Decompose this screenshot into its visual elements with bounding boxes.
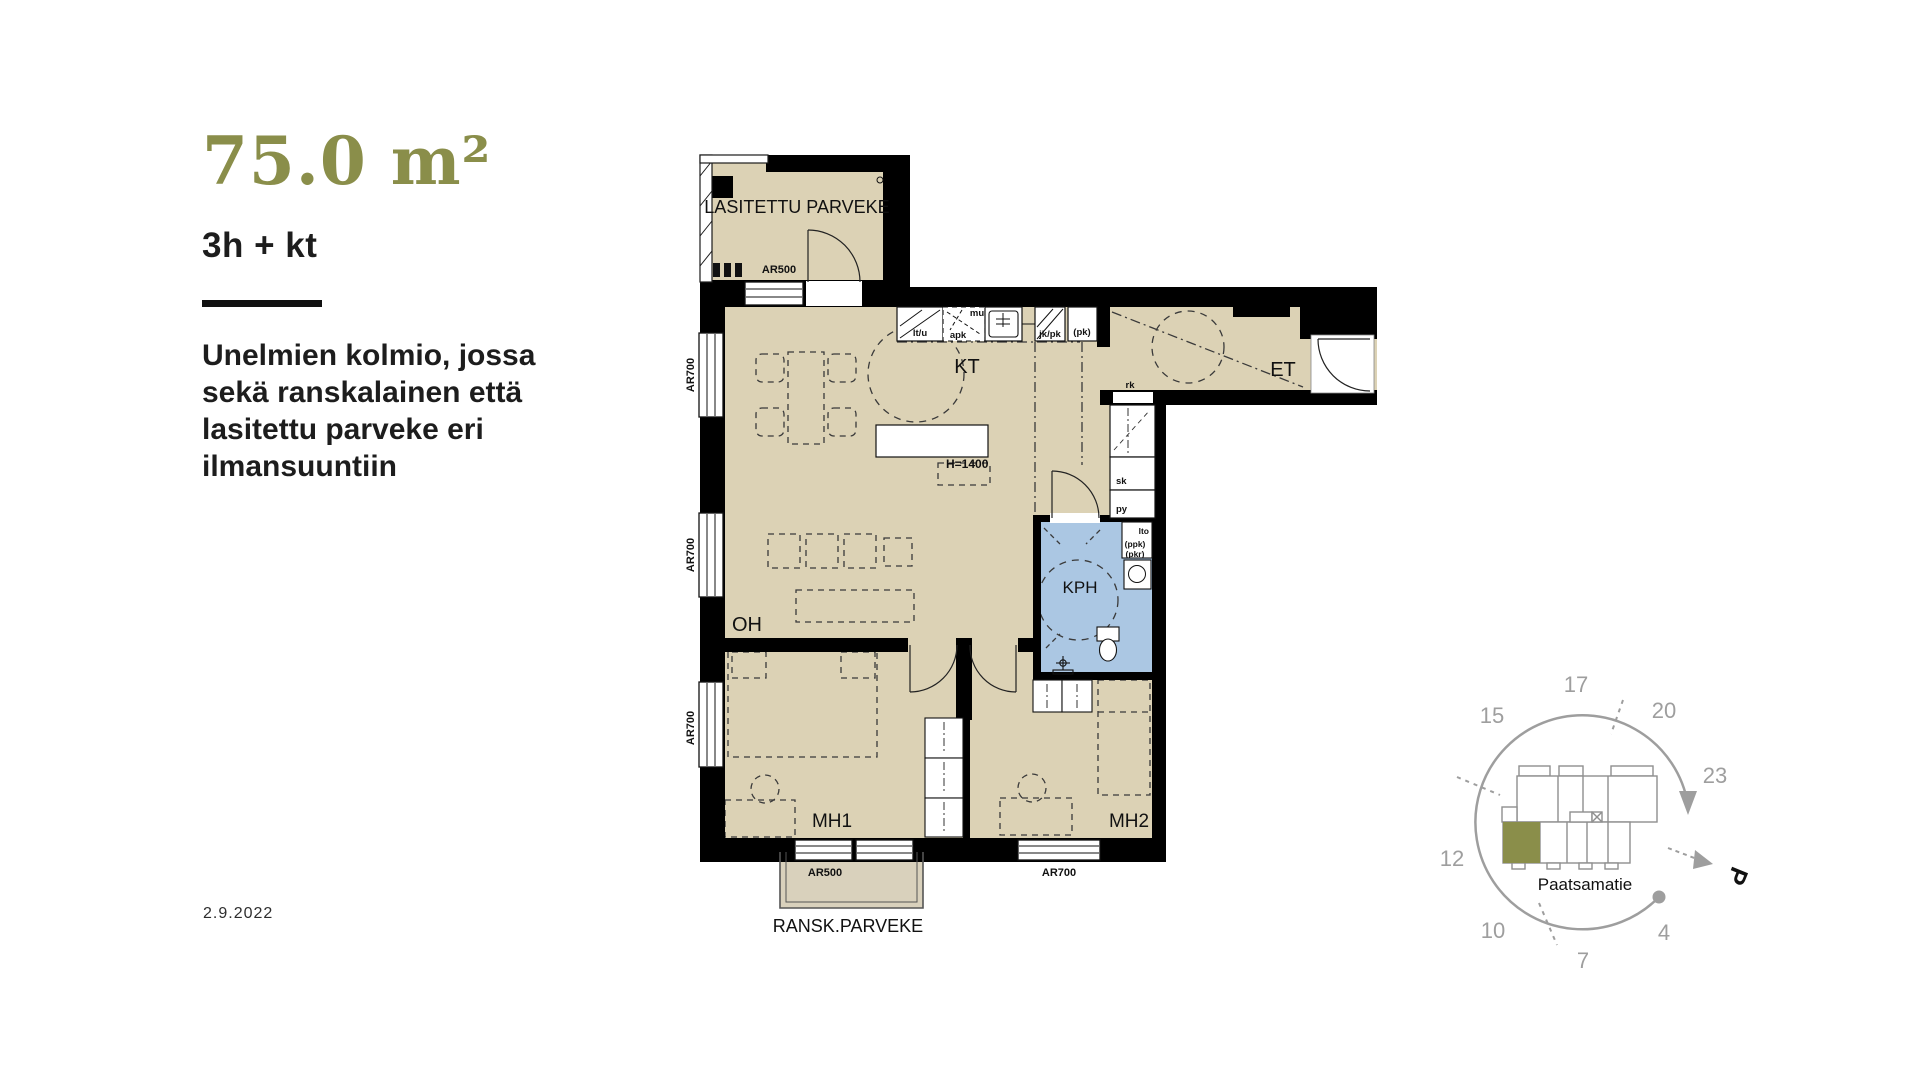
compass-number: 20 [1652,698,1676,723]
window-ar700-group [699,333,723,767]
fixture-label-pk: (pk) [1073,327,1090,338]
balcony-window [745,282,803,305]
highlighted-unit [1503,822,1540,863]
compass-number: 15 [1480,703,1504,728]
siteplan: Paatsamatie P 17 20 23 4 7 10 12 15 [1440,672,1753,973]
compass-number: 7 [1577,948,1589,973]
room-label-entry: ET [1270,359,1296,381]
room-label-french-balcony: RANSK.PARVEKE [773,916,923,936]
fixture-label-ppk: (ppk) [1125,539,1146,549]
fixture-label-pkr: (pkr) [1126,549,1145,559]
window-label-ar700-mh2: AR700 [1042,867,1076,879]
north-arrow-icon [1693,850,1713,869]
wall-corner-ne [1300,287,1377,339]
compass-number: 12 [1440,846,1464,871]
closet-rk [1110,405,1155,457]
balcony-vent [724,263,731,277]
compass-dot [1653,891,1666,904]
kph-door-opening [1050,513,1100,523]
wall-closet-divider [963,718,970,838]
window-label-ar700-left3: AR700 [685,711,697,745]
room-label-glazed-balcony: LASITETTU PARVEKE [704,197,889,217]
room-label-kitchen: KT [954,356,980,378]
room-label-mh1: MH1 [812,811,852,832]
wall-kph-left [1033,515,1041,680]
wall-balcony-top [766,155,885,172]
rk-wall-gap [1113,392,1153,403]
window-label-ar500: AR500 [762,264,796,276]
toilet-bowl [1100,639,1117,661]
fixture-label-mu: mu [970,308,984,319]
fixture-label-lto: lto [1139,526,1149,536]
counter-height-label: H=1400 [946,457,989,471]
window-label-ar500-french: AR500 [808,867,842,879]
north-marker-label: P [1721,863,1753,889]
island-counter [876,425,988,457]
balcony-vent [713,263,720,277]
balcony-vent [735,263,742,277]
compass-arrowhead-icon [1679,791,1697,815]
street-name-label: Paatsamatie [1538,875,1633,894]
closet-label-sk: sk [1116,476,1127,487]
fixture-label-jkpk: jk/pk [1038,329,1061,340]
fixture-label-apk: apk [950,330,967,341]
closet-label-rk: rk [1126,380,1136,391]
room-label-bathroom: KPH [1063,578,1098,597]
window-label-ar700-left1: AR700 [685,358,697,392]
entry-door [1311,335,1374,393]
compass-number: 4 [1658,920,1670,945]
fixture-label-ltu: lt/u [913,328,927,339]
compass-number: 23 [1703,763,1727,788]
north-arrow-line [1668,848,1697,859]
balcony-glazing-top [700,155,768,163]
window-label-ar700-left2: AR700 [685,538,697,572]
wall-oh-mh1 [712,638,908,652]
floorplan-canvas: LASITETTU PARVEKE AR500 KT ET OH MH1 MH2… [0,0,1920,1080]
room-label-living: OH [732,614,762,636]
compass-number: 10 [1481,918,1505,943]
balcony-pillar [712,176,733,198]
room-label-mh2: MH2 [1109,811,1149,832]
wall-column [1233,287,1290,317]
compass-number: 17 [1564,672,1588,697]
closet-label-py: py [1116,504,1128,515]
balcony-door-opening [806,281,862,306]
wall-balcony-right [883,155,910,307]
wall-kitchen-stub [1097,307,1110,347]
